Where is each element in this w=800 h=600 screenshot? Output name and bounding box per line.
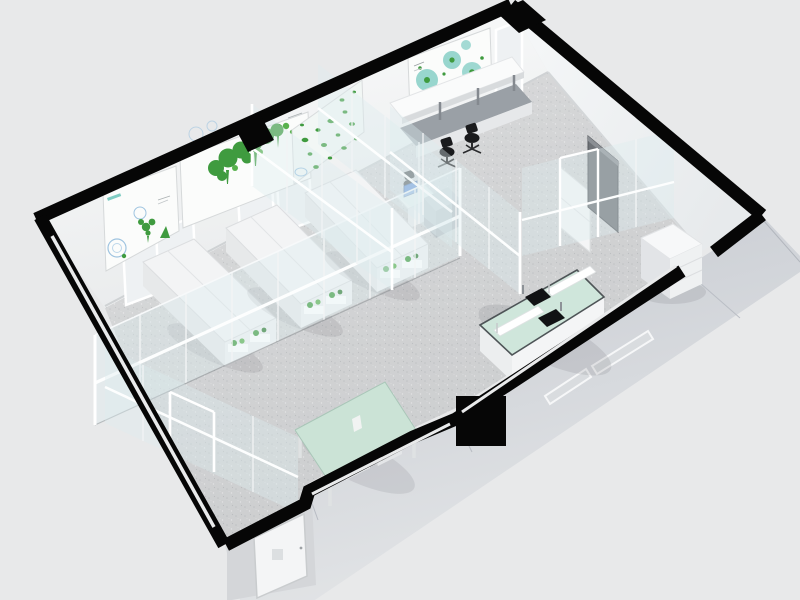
pier-bottom (456, 396, 506, 446)
door-vent (272, 549, 283, 560)
render-canvas (0, 0, 800, 600)
lab-floorplan-render (0, 0, 800, 600)
door-handle (300, 547, 303, 550)
